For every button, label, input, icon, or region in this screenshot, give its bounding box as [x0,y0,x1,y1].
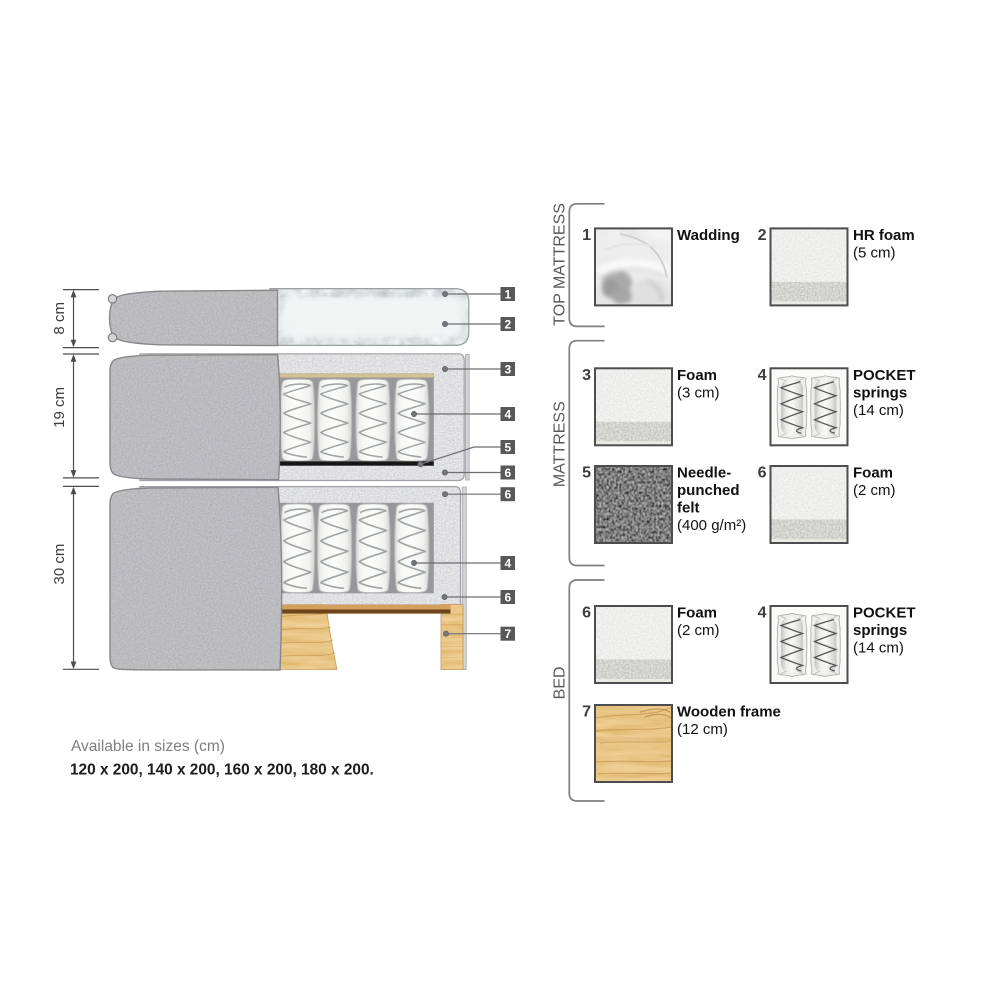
svg-text:Available in sizes (cm): Available in sizes (cm) [71,738,225,755]
svg-text:(2 cm): (2 cm) [853,482,896,499]
svg-text:6: 6 [758,465,767,482]
svg-text:30 cm: 30 cm [51,544,68,585]
svg-text:(2 cm): (2 cm) [677,622,720,639]
svg-text:(5 cm): (5 cm) [853,244,896,261]
svg-text:120 x 200, 140 x 200, 160 x 20: 120 x 200, 140 x 200, 160 x 200, 180 x 2… [70,762,374,779]
svg-text:6: 6 [504,466,511,480]
svg-text:BED: BED [552,666,569,699]
svg-text:(14 cm): (14 cm) [853,402,904,419]
svg-text:2: 2 [758,227,767,244]
svg-text:6: 6 [504,488,511,502]
svg-text:7: 7 [582,704,591,721]
svg-text:3: 3 [582,367,591,384]
svg-text:Foam: Foam [853,465,893,482]
svg-text:(3 cm): (3 cm) [677,384,720,401]
svg-text:19 cm: 19 cm [51,387,68,428]
svg-text:4: 4 [758,605,767,622]
svg-text:1: 1 [504,287,511,301]
svg-text:Wooden frame: Wooden frame [677,704,781,721]
svg-text:6: 6 [582,605,591,622]
svg-text:Needle-: Needle- [677,465,731,482]
svg-text:felt: felt [677,500,700,517]
svg-text:2: 2 [504,317,511,331]
svg-text:MATTRESS: MATTRESS [552,401,569,487]
svg-text:4: 4 [758,367,767,384]
svg-text:4: 4 [504,556,511,570]
svg-text:(400 g/m²): (400 g/m²) [677,517,746,534]
svg-text:springs: springs [853,622,907,639]
svg-text:5: 5 [582,465,591,482]
svg-text:TOP MATTRESS: TOP MATTRESS [552,203,569,326]
svg-text:3: 3 [504,362,511,376]
svg-text:4: 4 [504,407,511,421]
svg-text:7: 7 [504,627,511,641]
svg-text:6: 6 [504,590,511,604]
svg-text:HR foam: HR foam [853,227,915,244]
svg-text:punched: punched [677,482,740,499]
svg-text:Foam: Foam [677,367,717,384]
svg-text:Foam: Foam [677,605,717,622]
svg-text:8 cm: 8 cm [51,302,68,335]
svg-text:POCKET: POCKET [853,367,916,384]
svg-text:POCKET: POCKET [853,605,916,622]
svg-text:Wadding: Wadding [677,227,740,244]
svg-text:(12 cm): (12 cm) [677,721,728,738]
svg-text:(14 cm): (14 cm) [853,640,904,657]
svg-text:springs: springs [853,384,907,401]
svg-text:1: 1 [582,227,591,244]
svg-text:5: 5 [504,440,511,454]
